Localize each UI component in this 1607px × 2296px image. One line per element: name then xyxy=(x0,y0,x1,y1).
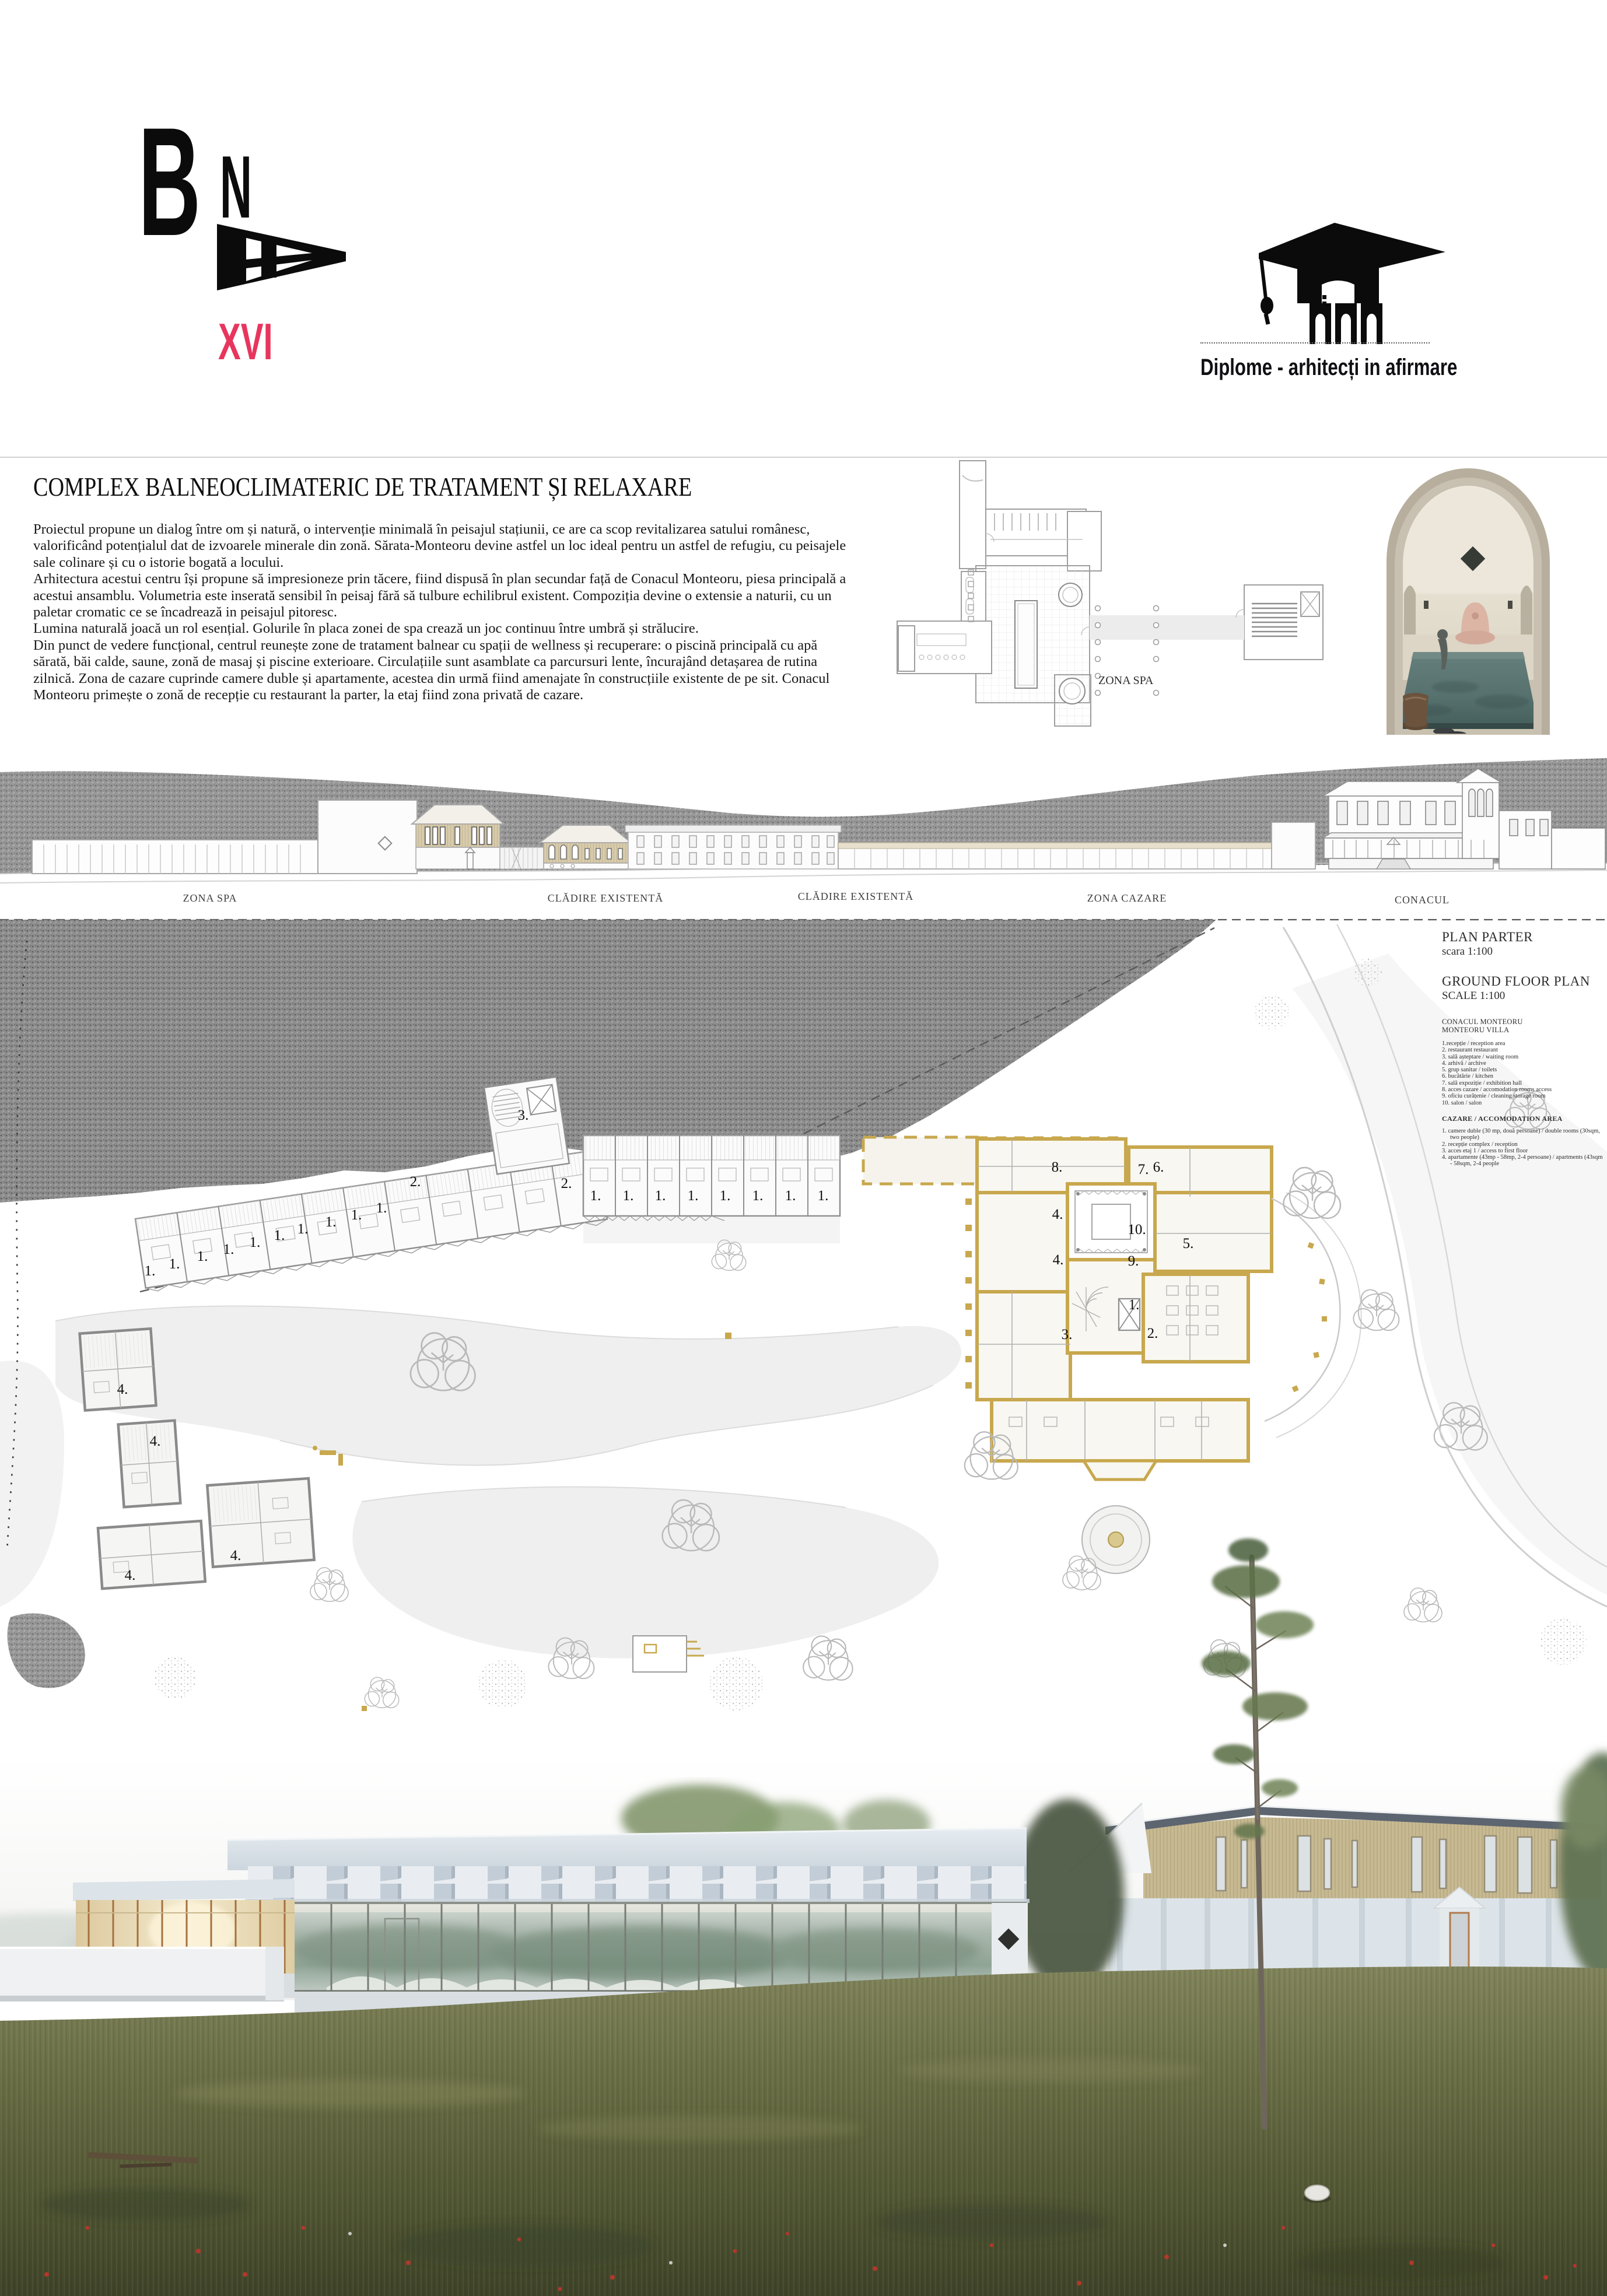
legend-item: 7. sală expoziție / exhibition hall xyxy=(1442,1080,1603,1086)
legend-item: 4. arhivă / archive xyxy=(1442,1060,1603,1067)
elevation-label-zona-cazare: ZONA CAZARE xyxy=(1087,892,1167,905)
legend-item: 10. salon / salon xyxy=(1442,1100,1603,1106)
legend-plan-scale-ro: scara 1:100 xyxy=(1442,945,1603,958)
diplome-divider xyxy=(1200,342,1430,343)
legend-spacer xyxy=(1442,958,1603,973)
legend-item: 8. acces cazare / accomodation rooms acc… xyxy=(1442,1086,1603,1093)
elevation-label-cladire-2: CLĂDIRE EXISTENTĂ xyxy=(798,891,913,903)
legend-item: 2. recepție complex / reception xyxy=(1442,1141,1603,1148)
project-title: COMPLEX BALNEOCLIMATERIC DE TRATAMENT ȘI… xyxy=(33,471,692,502)
arches-icon xyxy=(1310,303,1382,344)
legend-item: 6. bucătărie / kitchen xyxy=(1442,1073,1603,1079)
conac-plan xyxy=(863,1137,1361,1480)
bna-letter-b: B xyxy=(138,105,201,260)
legend-item: 5. grup sanitar / toilets xyxy=(1442,1067,1603,1073)
description-paragraph: Lumina naturală joacă un rol esențial. G… xyxy=(33,621,857,637)
legend-conac-title-en: MONTEORU VILLA xyxy=(1442,1026,1603,1035)
legend-item: 9. oficiu curățenie / cleaning storage r… xyxy=(1442,1093,1603,1099)
description-paragraph: Proiectul propune un dialog între om și … xyxy=(33,521,857,571)
legend-spacer xyxy=(1442,1034,1603,1040)
elevation-label-cladire-1: CLĂDIRE EXISTENTĂ xyxy=(548,892,663,905)
spa-plan-zone-label: ZONA SPA xyxy=(1098,674,1153,688)
legend-cazare-title: CAZARE / ACCOMODATION AREA xyxy=(1442,1115,1603,1123)
spa-interior-render xyxy=(1368,460,1569,751)
bna-letter-a-icon xyxy=(210,216,353,297)
legend-spacer xyxy=(1442,1123,1603,1128)
project-description: Proiectul propune un dialog între om și … xyxy=(33,521,857,703)
legend-item: 1. camere duble (30 mp, două persoane) /… xyxy=(1442,1128,1603,1141)
poster-board: B N BIENALANAȚIONALĂDEARHITECTURĂ XVI 20… xyxy=(0,0,1607,2296)
bna-edition: XVI xyxy=(218,316,273,367)
description-paragraph: Din punct de vedere funcțional, centrul … xyxy=(33,637,857,704)
diplome-logo: Diplome - arhitecți in afirmare xyxy=(1190,210,1598,402)
elevation-label-conacul: CONACUL xyxy=(1395,894,1450,906)
legend-cazare-items: 1. camere duble (30 mp, două persoane) /… xyxy=(1442,1128,1603,1168)
legend-plan-scale-en: SCALE 1:100 xyxy=(1442,989,1603,1002)
diplome-wordmark: Diplome - arhitecți in afirmare xyxy=(1200,355,1457,381)
elevation-label-zona-spa: ZONA SPA xyxy=(183,892,237,905)
legend-item: 2. restaurant restaurant xyxy=(1442,1047,1603,1053)
legend: PLAN PARTER scara 1:100 GROUND FLOOR PLA… xyxy=(1442,929,1603,1168)
description-paragraph: Arhitectura acestui centru își propune s… xyxy=(33,571,857,621)
legend-spacer xyxy=(1442,1002,1603,1018)
spa-floor-plan xyxy=(892,458,1371,732)
legend-plan-title-en: GROUND FLOOR PLAN xyxy=(1442,973,1603,989)
legend-item: 3. sală așteptare / waiting room xyxy=(1442,1054,1603,1060)
poplar-tree xyxy=(1161,1516,1371,2158)
legend-conac-items: 1.recepție / reception area2. restaurant… xyxy=(1442,1040,1603,1106)
legend-conac-title-ro: CONACUL MONTEORU xyxy=(1442,1018,1603,1026)
legend-plan-title-ro: PLAN PARTER xyxy=(1442,929,1603,945)
bna-logo: B N BIENALANAȚIONALĂDEARHITECTURĂ XVI 20… xyxy=(0,0,408,443)
legend-spacer xyxy=(1442,1106,1603,1115)
legend-item: 4. apartamente (43mp - 58mp, 2-4 persoan… xyxy=(1442,1154,1603,1168)
legend-item: 1.recepție / reception area xyxy=(1442,1040,1603,1047)
legend-item: 3. acces etaj 1 / access to first floor xyxy=(1442,1148,1603,1154)
